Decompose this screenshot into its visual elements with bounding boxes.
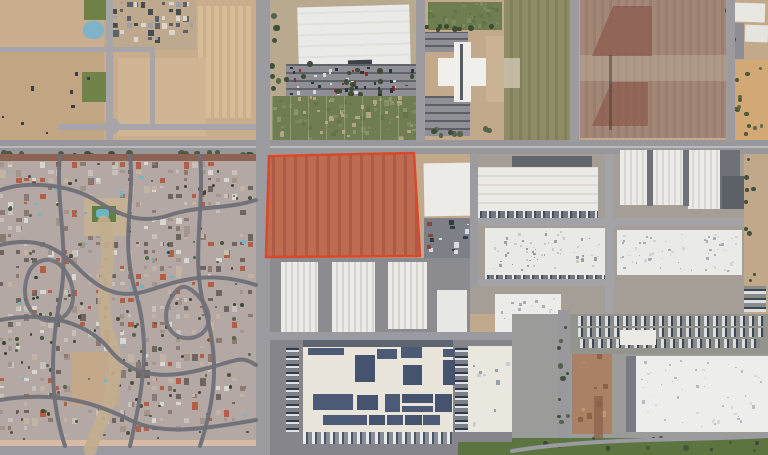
school-trees [457,131,463,137]
office-building [733,2,766,22]
residential-houses [216,394,221,400]
residential-houses [192,402,198,410]
school-field-texture [482,25,485,27]
residential-houses [208,298,213,301]
residential-houses [96,298,101,304]
residential-houses [208,362,213,368]
residential-houses [176,258,181,262]
parked-trailers [467,224,470,226]
residential-houses [56,298,60,302]
parked-cars [318,85,322,88]
residential-trees [66,321,68,323]
residential-houses [24,202,27,204]
desert-shrubs [744,132,748,136]
residential-houses [240,266,245,271]
street-trees [557,415,560,418]
backyard-pools [140,285,143,288]
warehouse-dark-strip [512,156,592,167]
residential-houses [128,266,132,271]
roof-skylights [717,249,719,250]
backyard-pools [170,276,174,278]
guard-office-building [620,330,656,345]
solar-panel-array [403,365,422,385]
distribution-center-roof [636,356,768,432]
residential-trees [2,341,6,345]
residential-houses [216,426,219,428]
residential-houses [64,298,67,300]
parked-trailers [454,242,458,248]
residential-houses [184,162,189,169]
parked-cars [323,73,326,77]
graded-field-striped [198,6,252,118]
residential-houses [248,282,251,284]
collector-road-vertical [416,0,425,142]
roof-skylights [652,252,654,255]
roof-skylights [647,373,650,375]
roof-skylights [512,264,513,265]
roof-skylights [704,378,705,379]
new-housing-roofs [162,16,165,20]
residential-houses [144,402,149,406]
residential-houses [32,370,37,374]
residential-trees [32,297,35,300]
residential-trees [21,361,24,364]
residential-trees [215,306,217,308]
roof-skylights [671,251,673,253]
residential-houses [0,386,4,388]
roof-skylights [701,426,702,427]
residential-trees [227,373,231,377]
residential-houses [176,194,182,198]
roof-skylights [717,420,720,423]
residential-trees [56,203,60,207]
residential-houses [176,426,181,432]
street-trees [745,188,748,191]
backyard-pools [140,176,143,179]
residential-houses [120,170,125,173]
new-housing-roofs [190,23,193,27]
school-field-texture [485,3,487,5]
backyard-pools [22,377,25,380]
residential-houses [40,322,46,326]
residential-houses [160,322,165,325]
residential-houses [48,178,54,183]
roof-skylights [563,254,564,255]
residential-houses [24,410,29,413]
roof-skylights [636,262,638,264]
roof-skylights [526,248,528,250]
residential-houses [56,346,60,351]
backyard-pools [151,259,153,261]
roof-skylights [533,265,535,267]
residential-houses [88,306,91,309]
parked-cars [290,93,293,95]
parked-cars [330,83,332,85]
residential-houses [40,194,46,199]
residential-houses [80,162,86,166]
roof-skylights [718,270,719,271]
residential-houses [16,250,20,254]
residential-trees [169,394,172,397]
residential-houses [136,426,141,432]
roof-skylights [506,237,508,239]
parking-lot-trees [355,68,360,73]
arterial-median-line [0,146,768,148]
residential-houses [144,226,148,229]
residential-houses [128,170,133,174]
residential-houses [120,314,124,319]
residential-houses [144,186,150,193]
residential-houses [48,258,52,262]
residential-houses [152,426,158,430]
street-trees [557,346,561,350]
residential-houses [240,234,243,237]
residential-houses [48,170,54,174]
backyard-pools [84,212,86,214]
warehouse-roof [688,150,721,209]
street-trees [560,376,566,382]
residential-houses [176,290,180,294]
residential-houses [160,274,166,278]
roof-skylights [548,242,550,244]
residential-houses [0,378,4,381]
residential-houses [8,346,12,351]
residential-houses [120,322,124,326]
roof-skylights [520,245,522,247]
backyard-pools [120,191,123,195]
roof-skylights [635,247,638,250]
residential-houses [80,306,84,310]
parked-trailers-row [286,346,299,432]
industrial-street [470,279,615,286]
dark-roof-building [722,176,744,209]
roof-skylights [553,298,555,300]
backyard-pools [35,203,38,205]
parked-trailers [463,236,467,239]
residential-houses [184,226,190,234]
roof-skylights [514,243,516,245]
roof-skylights [714,423,716,425]
parking-lot-trees [344,79,349,84]
residential-trees [126,431,130,435]
residential-trees [97,163,99,165]
school-field-texture [496,22,498,25]
residential-houses [0,170,6,178]
industrial-street-vertical[interactable] [558,310,569,455]
residential-houses [160,306,164,309]
roof-skylights [735,236,738,238]
roof-skylights [591,255,593,257]
school-field-texture [467,18,471,24]
residential-houses [168,306,171,310]
residential-houses [184,298,187,302]
residential-houses [0,426,5,430]
residential-houses [224,178,229,182]
parking-lot-trees [378,79,382,83]
residential-houses [184,218,189,221]
residential-houses [144,266,147,269]
residential-houses [72,274,76,280]
residential-houses [136,170,142,174]
street-trees [559,339,563,343]
residential-houses [96,178,100,182]
solar-panel-array [405,415,422,425]
school-trees [457,27,462,32]
school-field-texture [480,2,483,5]
construction-vehicles [70,90,73,94]
residential-houses [64,338,68,342]
residential-houses [232,322,237,328]
residential-houses [56,170,60,176]
residential-houses [120,418,124,422]
residential-houses [152,386,157,390]
roof-skylights [518,233,521,236]
residential-houses [16,218,22,222]
residential-trees [198,187,202,191]
local-road [58,124,256,130]
residential-houses [136,298,140,301]
school-field-texture [472,20,476,23]
residential-houses [208,354,214,362]
roof-skylights [760,381,762,383]
street-trees [543,441,548,446]
residential-trees [75,179,77,181]
new-housing-roofs [113,16,117,18]
roof-skylights [704,239,706,241]
warehouse-roof [620,150,647,205]
residential-houses [176,346,180,350]
industrial-street[interactable] [470,218,768,226]
new-housing-roofs [169,2,174,5]
construction-vehicles [31,86,35,91]
parked-trailers [465,229,469,234]
backyard-pools [85,243,88,246]
roof-skylights [727,270,729,272]
parked-cars [329,71,331,74]
new-housing-roofs [176,9,181,15]
residential-houses [8,418,13,422]
satellite-map[interactable] [0,0,768,455]
street-trees [558,398,561,401]
residential-houses [72,330,76,336]
roof-skylights [544,243,546,245]
school-field-texture [454,10,457,14]
roof-skylights [650,258,652,260]
roof-skylights [724,250,726,252]
residential-houses [216,266,221,272]
parked-cars [365,72,368,76]
bottom-road [0,446,256,455]
school-field-texture [452,20,456,25]
residential-houses [32,418,38,426]
parked-cars [299,69,302,72]
street-trees [273,25,279,31]
residential-trees [134,325,136,327]
scrub-lot-lines [272,96,420,142]
residential-houses [72,290,77,296]
residential-houses [184,354,190,361]
construction-vehicles [71,105,75,107]
parked-cars [290,67,293,69]
industrial-street-vertical[interactable] [605,154,614,330]
residential-houses [160,218,166,225]
residential-houses [152,346,157,352]
residential-houses [120,338,126,344]
roof-skylights [598,244,600,245]
residential-houses [128,386,131,390]
residential-houses [40,362,46,369]
warehouse-roof [437,290,467,332]
parked-cars [352,70,354,72]
backyard-pools [18,302,22,305]
parked-trailers-row [744,286,766,312]
residential-houses [248,186,253,190]
residential-houses [208,274,211,276]
desert-shrubs [745,72,750,77]
roof-skylights [501,311,503,314]
roof-skylights [623,240,625,242]
residential-houses [136,362,141,369]
residential-houses [200,162,204,166]
roof-skylights [576,260,579,262]
residential-houses [232,378,237,381]
residential-houses [56,322,60,327]
residential-houses [208,266,212,272]
roof-skylights [714,266,717,269]
rooftop-units [473,365,475,367]
residential-houses [0,210,5,215]
roof-skylights [519,303,522,306]
roof-skylights [544,254,545,255]
residential-houses [152,162,156,165]
residential-houses [184,178,187,181]
residential-houses [120,330,123,332]
residential-houses [200,346,203,348]
parked-cars [335,68,338,72]
rooftop-units [494,409,497,412]
backyard-pools [242,240,246,244]
residential-houses [120,426,126,432]
parked-cars [390,88,394,93]
residential-houses [104,330,108,334]
residential-houses [24,426,27,430]
roof-skylights [537,259,538,260]
residential-trees [161,334,164,337]
residential-houses [112,170,118,175]
solar-panel-array [385,394,400,412]
residential-houses [24,306,28,310]
roof-skylights [639,242,641,244]
residential-houses [112,250,117,255]
backyard-pools [122,346,125,348]
residential-houses [24,298,27,301]
residential-houses [248,234,253,241]
residential-trees [30,333,33,336]
parked-trailers [430,238,434,241]
residential-houses [24,178,29,181]
residential-trees [232,336,236,340]
residential-houses [0,250,4,255]
solar-panel-array [369,415,385,425]
residential-houses [192,330,196,334]
residential-houses [240,386,246,389]
residential-houses [88,410,92,413]
warehouse-roof [652,150,683,205]
new-housing-roofs [113,9,117,14]
residential-houses [168,322,172,327]
roof-skylights [649,253,651,256]
residential-houses [216,210,220,213]
residential-trees [236,197,239,200]
roof-skylights [713,237,716,240]
residential-houses [0,186,3,188]
residential-trees [240,303,244,307]
roof-skylights [545,233,547,235]
parked-trailers [439,238,441,240]
roof-skylights [660,267,661,269]
roof-skylights [546,231,547,232]
roof-skylights [504,318,505,319]
residential-houses [48,290,52,293]
backyard-pools [104,379,107,382]
street-trees [751,187,755,191]
roof-skylights [707,362,709,364]
new-housing-roofs [127,16,131,21]
roof-skylights [623,267,625,269]
residential-houses [96,322,100,326]
roof-skylights [650,237,652,239]
residential-houses [152,186,157,190]
residential-houses [16,226,21,232]
residential-trees [116,317,120,321]
roof-skylights [577,246,579,248]
rooftop-units [483,374,486,376]
residential-houses [224,306,229,312]
rooftop-units [496,380,500,385]
residential-houses [176,330,181,335]
roof-skylights [662,251,663,252]
residential-trees [4,352,6,354]
residential-houses [64,226,68,231]
residential-trees [199,227,202,230]
parked-cars [294,78,297,82]
roof-skylights [623,235,626,237]
residential-houses [176,226,180,231]
solar-panel-array [357,395,378,410]
parked-cars [411,69,414,73]
roof-skylights [541,254,542,255]
street-trees [659,436,663,440]
residential-houses [128,210,132,212]
loading-dock-strip [303,340,453,347]
residential-houses [200,202,205,208]
residential-houses [248,314,253,317]
rooftop-units [473,422,476,424]
residential-houses [48,418,53,422]
roof-skylights [531,256,532,257]
roof-skylights [650,372,652,374]
roof-skylights [560,231,562,233]
residential-houses [176,234,181,240]
school-roof-ridge [460,44,463,100]
roof-skylights [721,243,724,246]
residential-houses [64,290,68,295]
roof-skylights [732,261,734,263]
residential-houses [136,242,139,244]
street-trees [606,446,610,450]
roof-skylights [653,240,656,242]
roof-skylights [682,422,683,423]
